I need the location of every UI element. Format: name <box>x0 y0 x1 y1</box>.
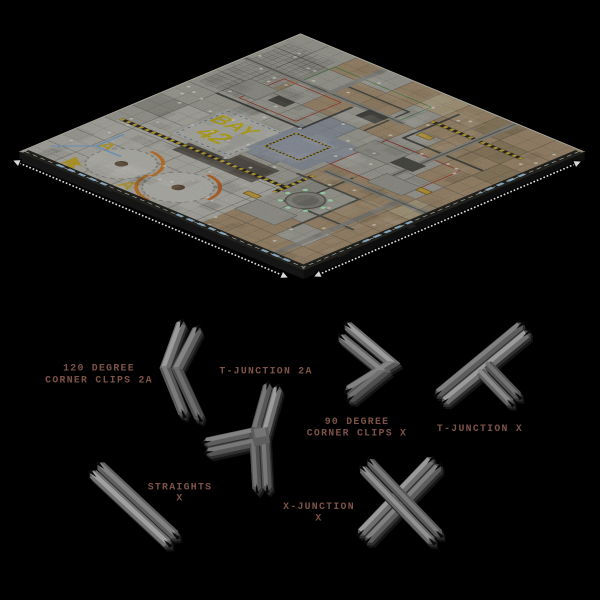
svg-text:120 DEGREE: 120 DEGREE <box>63 363 135 374</box>
svg-text:T-JUNCTION 2A: T-JUNCTION 2A <box>219 366 312 377</box>
svg-text:T-JUNCTION X: T-JUNCTION X <box>437 423 523 434</box>
svg-text:STRAIGHTS: STRAIGHTS <box>148 482 213 493</box>
svg-text:CORNER CLIPS X: CORNER CLIPS X <box>307 428 408 439</box>
svg-text:90 DEGREE: 90 DEGREE <box>325 416 390 427</box>
svg-text:X: X <box>176 493 183 504</box>
svg-text:X: X <box>315 513 322 524</box>
svg-text:CORNER CLIPS 2A: CORNER CLIPS 2A <box>45 375 153 386</box>
svg-text:X-JUNCTION: X-JUNCTION <box>283 501 355 512</box>
